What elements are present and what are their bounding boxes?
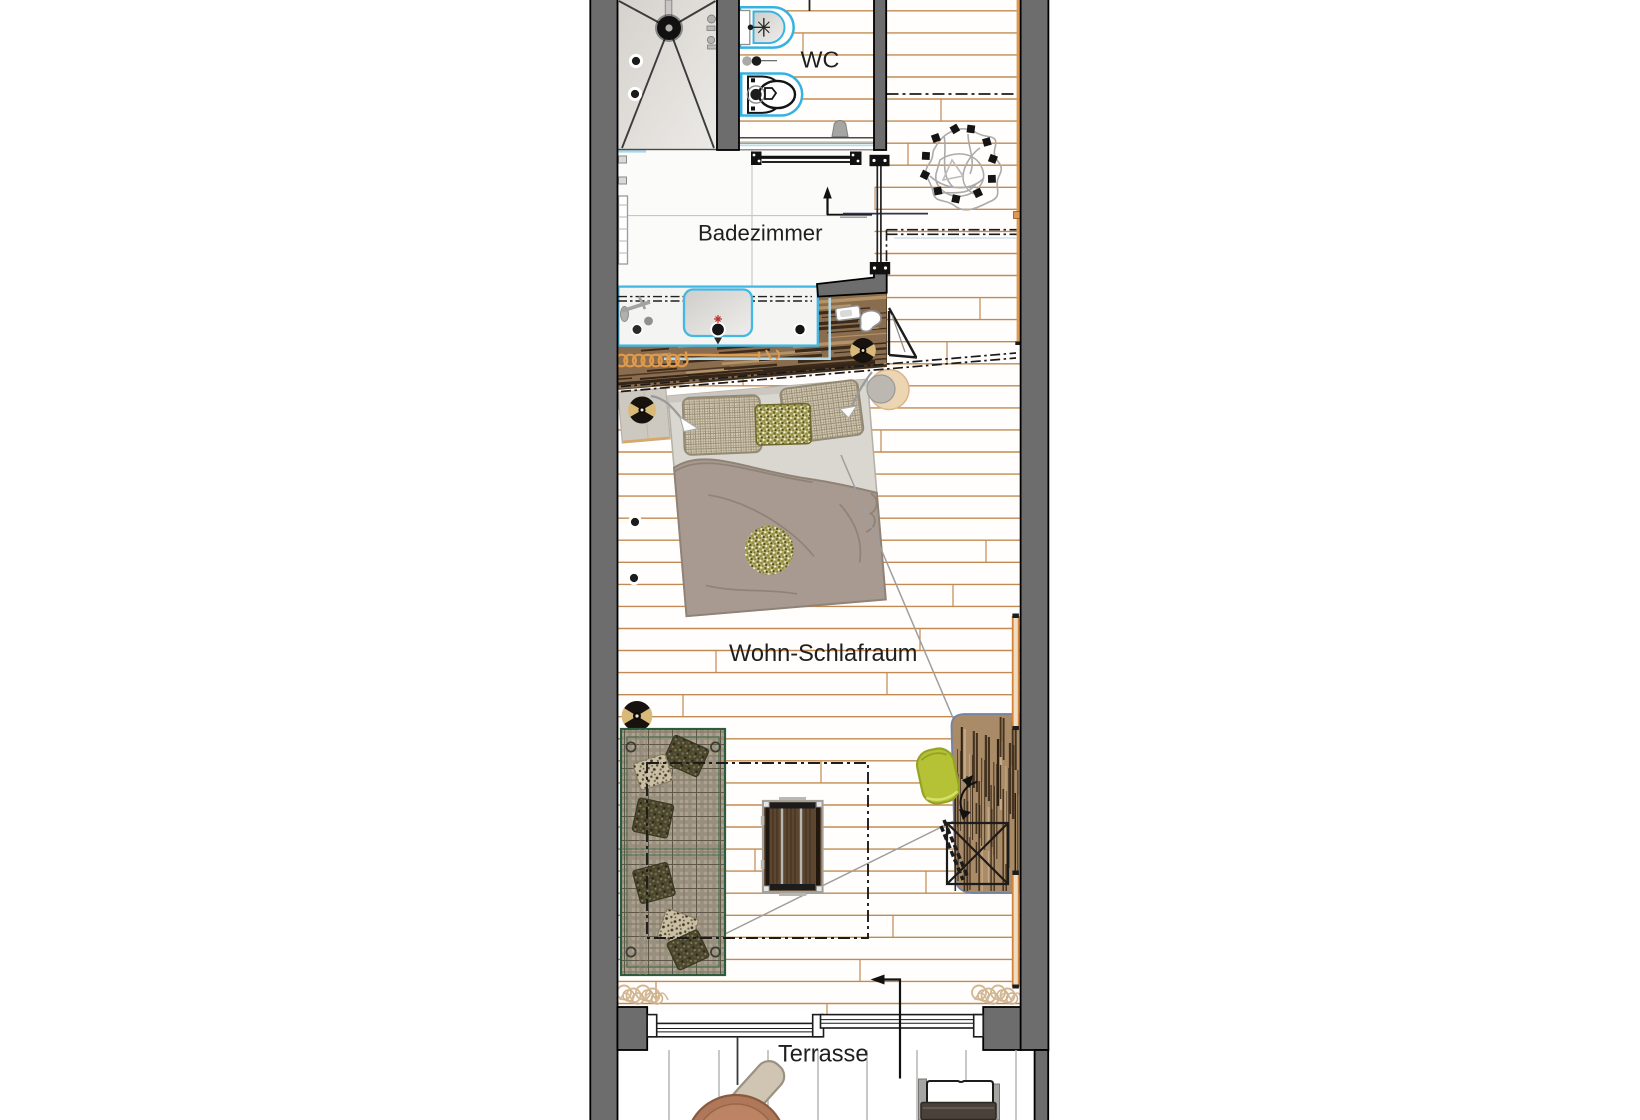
- svg-text:Badezimmer: Badezimmer: [698, 221, 823, 246]
- svg-text:Wohn-Schlafraum: Wohn-Schlafraum: [729, 641, 917, 667]
- svg-text:Terrasse: Terrasse: [778, 1042, 868, 1068]
- svg-text:WC: WC: [801, 47, 840, 73]
